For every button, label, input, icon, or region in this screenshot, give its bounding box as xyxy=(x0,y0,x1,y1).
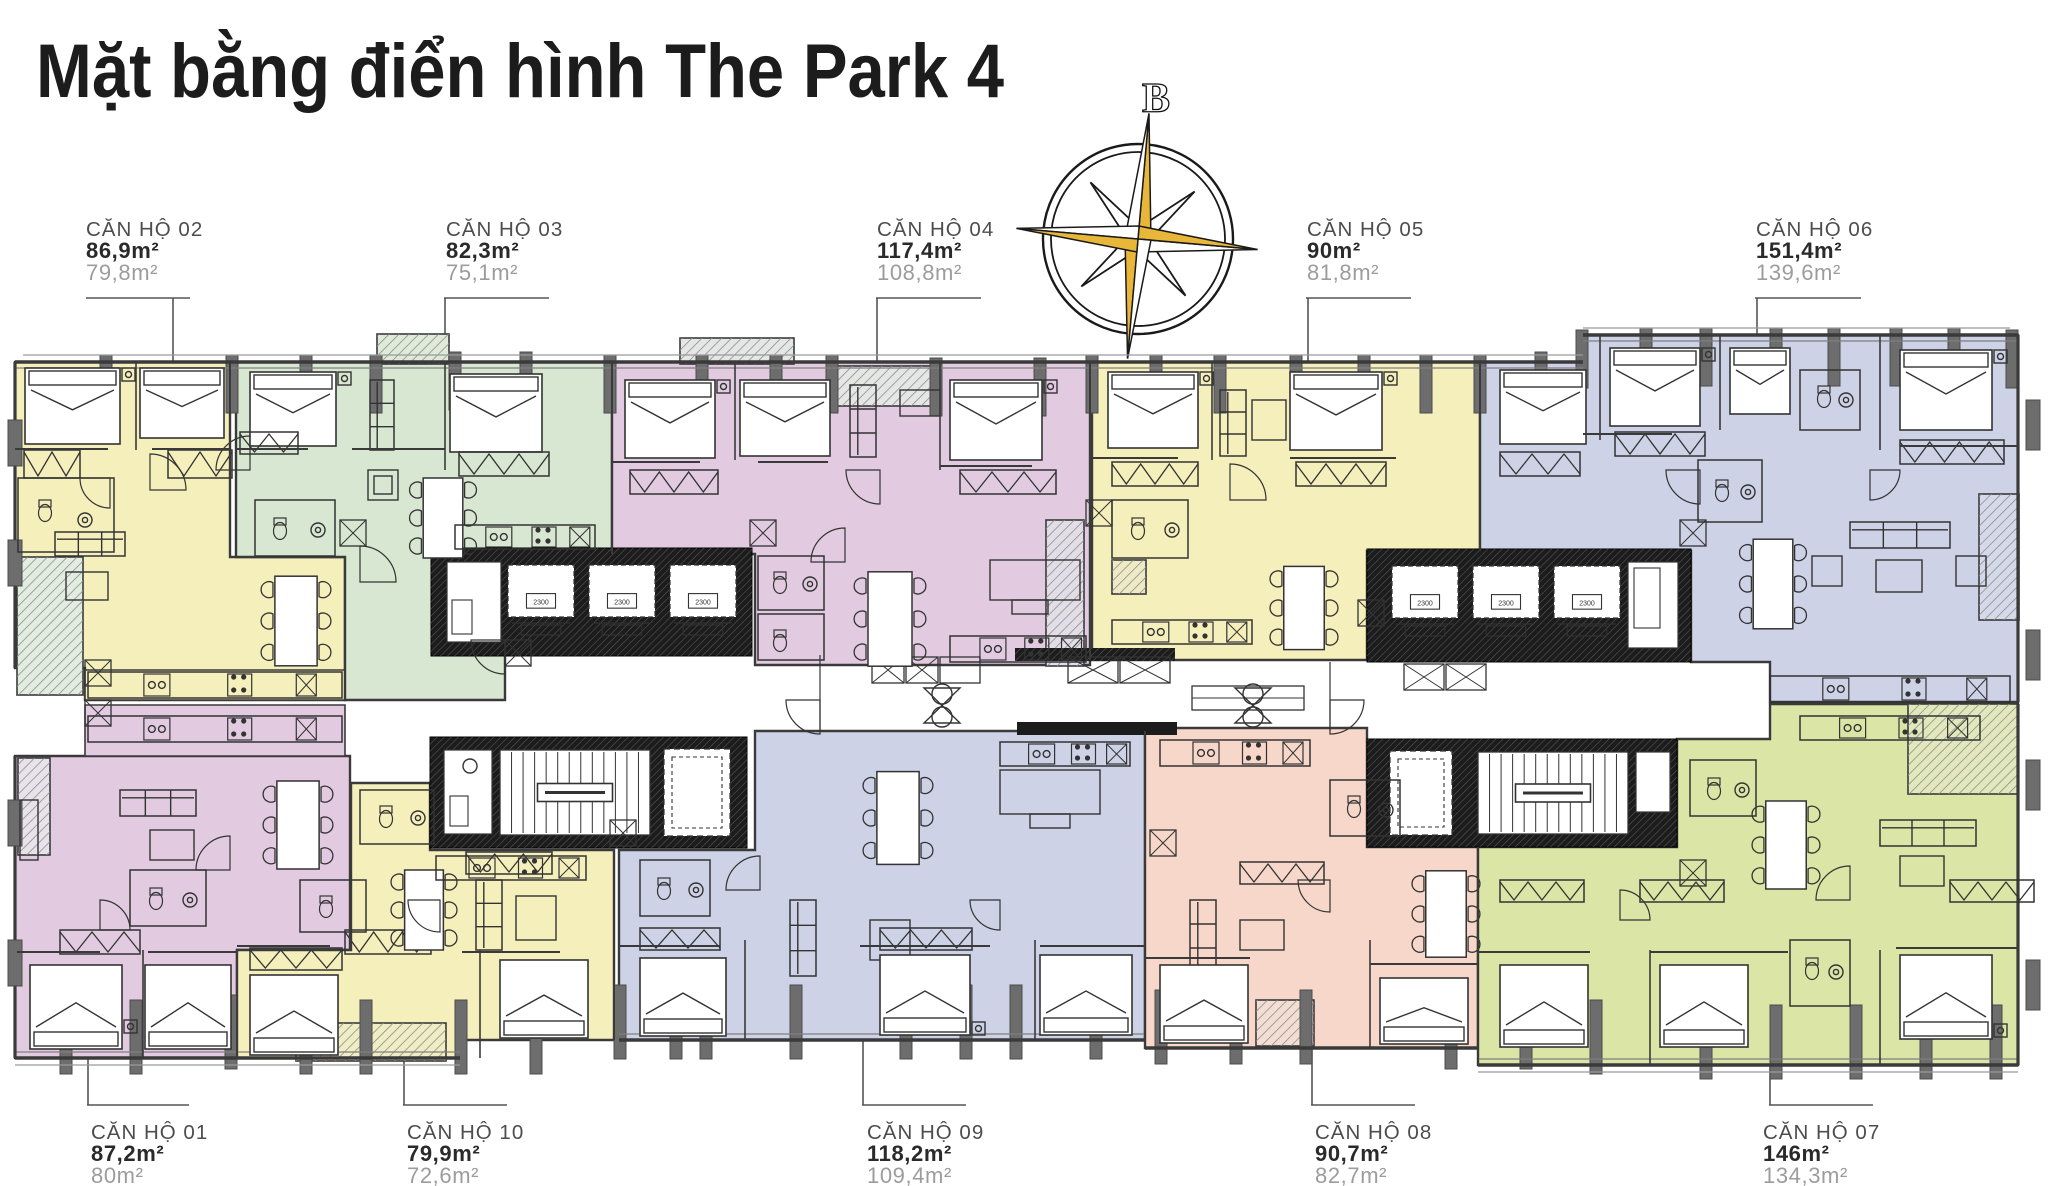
svg-text:Mặt bằng điển hình The Park 4: Mặt bằng điển hình The Park 4 xyxy=(36,29,1004,114)
svg-text:80m²: 80m² xyxy=(91,1163,144,1186)
svg-text:72,6m²: 72,6m² xyxy=(407,1163,479,1186)
svg-text:75,1m²: 75,1m² xyxy=(446,260,518,285)
svg-text:2300: 2300 xyxy=(614,600,630,607)
svg-text:81,8m²: 81,8m² xyxy=(1307,260,1379,285)
svg-text:2300: 2300 xyxy=(533,600,549,607)
svg-text:108,8m²: 108,8m² xyxy=(877,260,962,285)
svg-text:2300: 2300 xyxy=(1498,601,1514,608)
svg-text:2300: 2300 xyxy=(1417,601,1433,608)
svg-text:109,4m²: 109,4m² xyxy=(867,1163,952,1186)
svg-text:139,6m²: 139,6m² xyxy=(1756,260,1841,285)
svg-text:2300: 2300 xyxy=(695,600,711,607)
svg-text:82,7m²: 82,7m² xyxy=(1315,1163,1387,1186)
svg-text:2300: 2300 xyxy=(1579,601,1595,608)
svg-text:134,3m²: 134,3m² xyxy=(1763,1163,1848,1186)
svg-text:B: B xyxy=(1142,76,1170,122)
svg-text:79,8m²: 79,8m² xyxy=(86,260,158,285)
